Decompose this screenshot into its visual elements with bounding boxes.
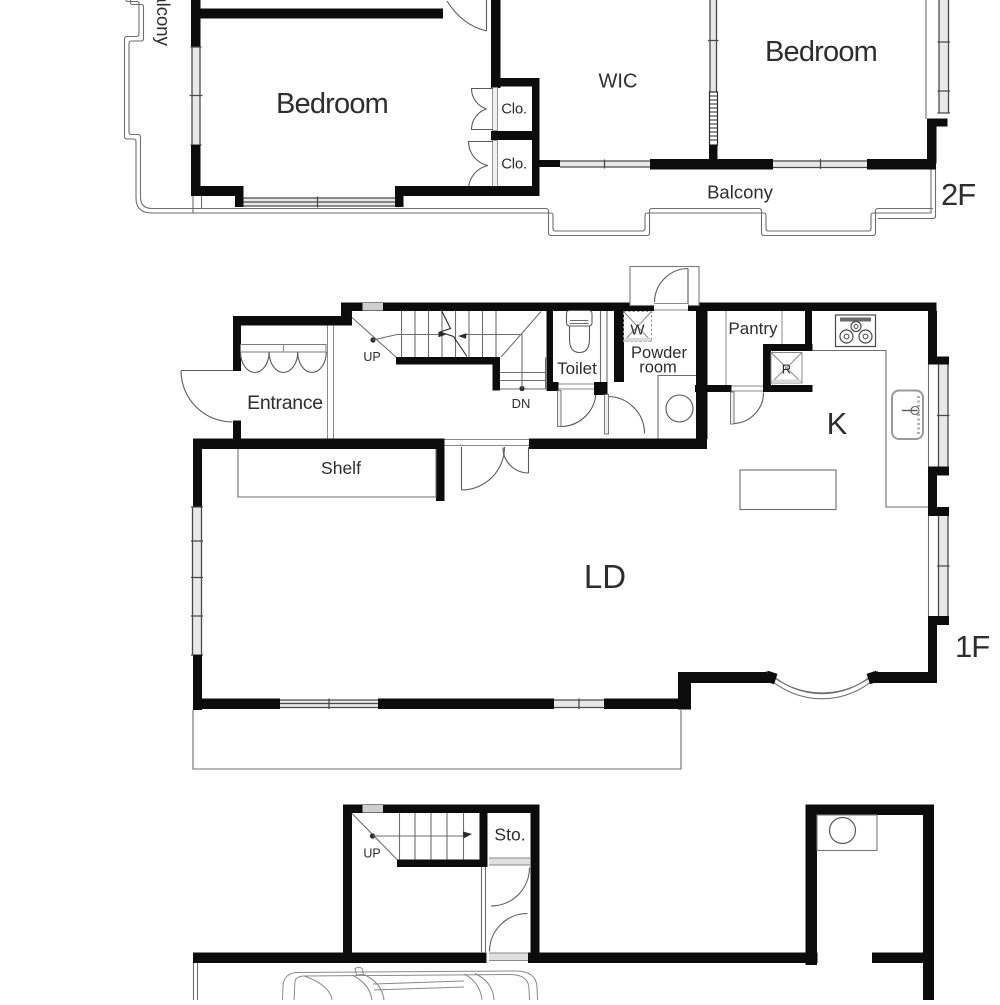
svg-text:Pantry: Pantry [728, 319, 778, 338]
svg-text:2F: 2F [941, 177, 975, 212]
svg-text:Clo.: Clo. [501, 101, 526, 118]
svg-text:LD: LD [584, 558, 626, 595]
svg-text:Toilet: Toilet [557, 359, 597, 378]
svg-text:Sto.: Sto. [494, 825, 525, 845]
svg-text:UP: UP [363, 847, 380, 861]
svg-text:Bedroom: Bedroom [276, 88, 388, 120]
svg-text:Entrance: Entrance [247, 392, 323, 414]
svg-text:Clo.: Clo. [501, 156, 526, 173]
svg-text:WIC: WIC [599, 71, 638, 93]
svg-text:UP: UP [363, 350, 380, 364]
svg-text:Balcony: Balcony [707, 182, 774, 203]
svg-text:Bedroom: Bedroom [765, 36, 877, 68]
svg-text:R: R [782, 362, 791, 377]
svg-text:DN: DN [512, 396, 531, 411]
svg-text:1F: 1F [955, 629, 989, 664]
svg-text:Balcony: Balcony [153, 0, 174, 47]
svg-text:K: K [827, 406, 848, 441]
svg-text:W: W [630, 322, 645, 339]
svg-text:room: room [639, 359, 677, 377]
svg-text:Shelf: Shelf [321, 458, 361, 478]
